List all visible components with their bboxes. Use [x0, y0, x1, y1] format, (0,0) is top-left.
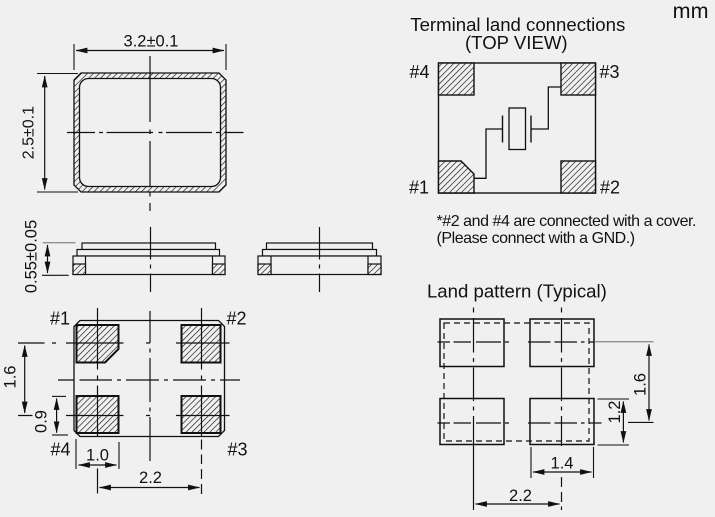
svg-text:#2: #2: [600, 178, 620, 198]
svg-text:#3: #3: [227, 440, 247, 460]
svg-text:#4: #4: [409, 62, 429, 82]
svg-text:#1: #1: [409, 178, 429, 198]
svg-text:2.5±0.1: 2.5±0.1: [21, 106, 38, 159]
svg-text:1.0: 1.0: [86, 447, 109, 465]
svg-text:(Please connect with a GND.): (Please connect with a GND.): [437, 230, 635, 247]
svg-text:#2: #2: [226, 309, 246, 329]
svg-text:2.2: 2.2: [139, 469, 162, 487]
svg-text:3.2±0.1: 3.2±0.1: [124, 33, 179, 51]
svg-text:#3: #3: [599, 62, 619, 82]
svg-text:1.6: 1.6: [632, 373, 650, 396]
svg-text:1.6: 1.6: [2, 366, 20, 389]
svg-text:1.4: 1.4: [551, 455, 574, 473]
svg-text:#4: #4: [50, 440, 70, 460]
svg-text:mm: mm: [673, 0, 709, 23]
svg-text:0.9: 0.9: [33, 410, 51, 433]
svg-text:2.2: 2.2: [509, 487, 532, 505]
svg-text:1.2: 1.2: [606, 401, 624, 424]
svg-text:0.55±0.05: 0.55±0.05: [23, 220, 41, 293]
svg-text:#1: #1: [50, 309, 70, 329]
svg-text:*#2 and #4 are connected with: *#2 and #4 are connected with a cover.: [437, 213, 697, 230]
svg-text:(TOP VIEW): (TOP VIEW): [465, 32, 568, 53]
svg-text:Land pattern (Typical): Land pattern (Typical): [427, 281, 607, 302]
